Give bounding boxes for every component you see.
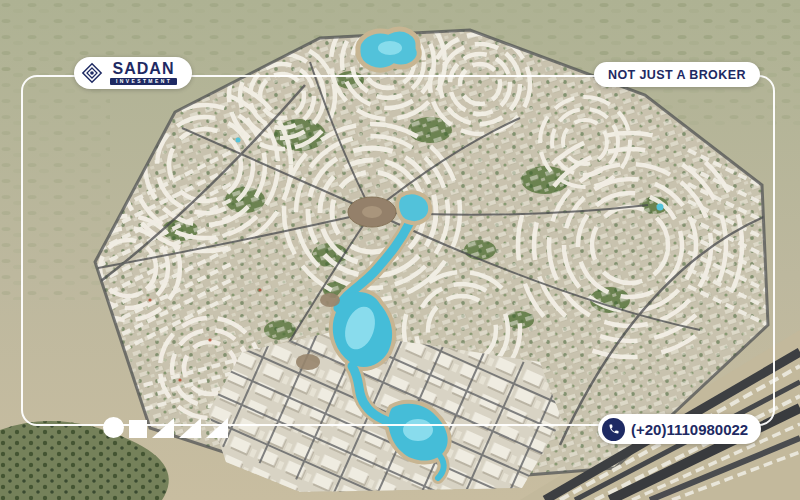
phone-icon — [602, 418, 625, 441]
decor-circle — [103, 417, 124, 438]
brand-text: SADAN INVESTMENT — [110, 61, 177, 86]
decor-triangle — [206, 418, 228, 438]
sadan-logo-icon — [81, 62, 103, 84]
decor-square — [129, 420, 147, 438]
decor-shapes — [103, 417, 228, 438]
decor-triangle — [179, 418, 201, 438]
decor-triangle — [152, 418, 174, 438]
banner: SADAN INVESTMENT NOT JUST A BROKER (+20)… — [0, 0, 800, 500]
tagline-text: NOT JUST A BROKER — [608, 68, 746, 82]
tagline-badge: NOT JUST A BROKER — [594, 62, 760, 87]
brand-badge[interactable]: SADAN INVESTMENT — [74, 57, 192, 89]
brand-subtitle: INVESTMENT — [110, 78, 177, 86]
phone-badge[interactable]: (+20)1110980022 — [598, 414, 761, 444]
phone-number: (+20)1110980022 — [631, 421, 748, 438]
brand-name: SADAN — [113, 61, 175, 77]
